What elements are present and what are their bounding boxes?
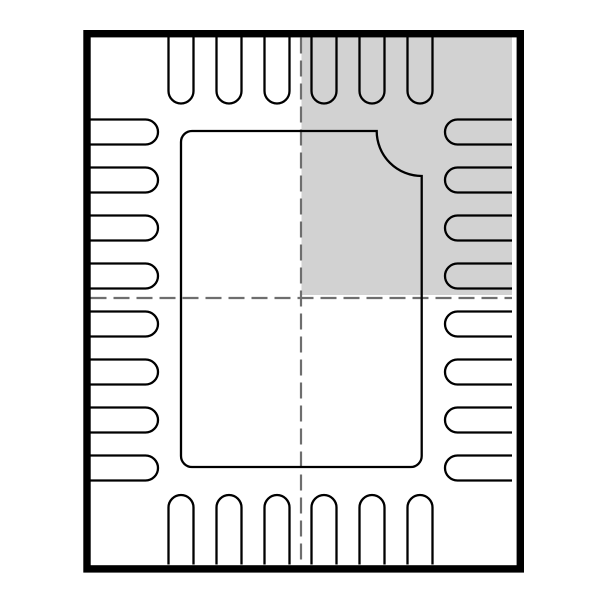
qfn-outline-svg <box>0 0 600 600</box>
package-drawing <box>0 0 600 600</box>
